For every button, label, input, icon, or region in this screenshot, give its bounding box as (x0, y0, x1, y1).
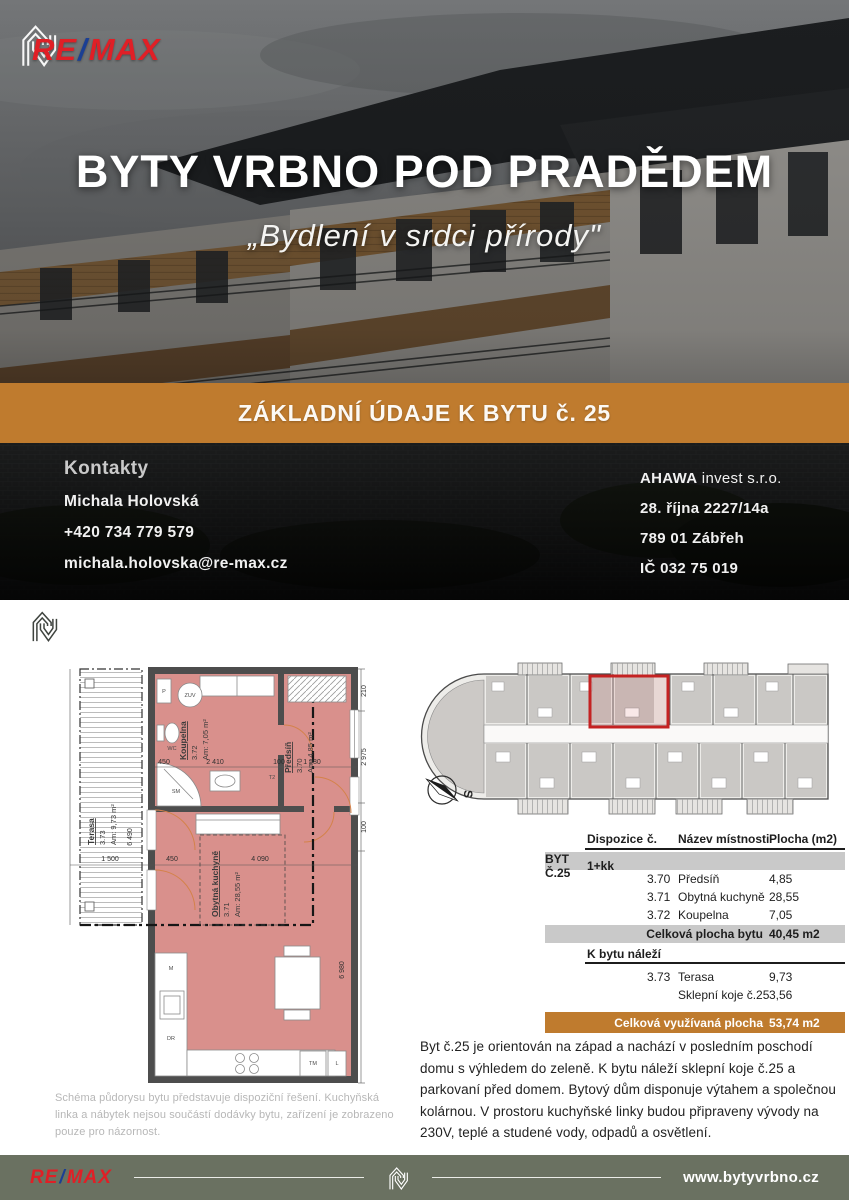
unit-layout: 1+kk (587, 859, 647, 873)
dim-label: 100 (273, 759, 285, 766)
room-number-terasa: 3.73 (98, 830, 107, 845)
room-number-koupelna: 3.72 (190, 745, 199, 760)
appliance-label: ZUV (185, 693, 196, 699)
section-header: ZÁKLADNÍ INFORMACE Byt č.25 (0, 600, 849, 658)
dim-label: 450 (158, 759, 170, 766)
room-label-terasa: Terasa (86, 818, 96, 845)
belongs-row: K bytu náleží (545, 946, 845, 962)
remax-logo: RE/MAX (14, 20, 161, 68)
page-subtitle: „Bydlení v srdci přírody" (0, 218, 849, 254)
footer-line-right (432, 1177, 662, 1179)
company-id: IČ 032 75 019 (640, 560, 782, 577)
agent-email: michala.holovska@re-max.cz (64, 555, 288, 573)
area-table: Dispozice č. Název místnosti Plocha (m2)… (545, 830, 845, 1033)
hero-section: RE/MAX BYTY VRBNO POD PRADĚDEM „Bydlení … (0, 0, 849, 600)
company-address-2: 789 01 Zábřeh (640, 530, 782, 547)
unit-row: BYT Č.25 1+kk (545, 852, 845, 870)
av-logo-icon (386, 1164, 410, 1192)
dim-label: 6 980 (339, 961, 346, 979)
table-row: 3.73 Terasa 9,73 (545, 968, 845, 986)
appliance-label: T2 (269, 775, 275, 781)
col-plocha: Plocha (m2) (769, 832, 845, 846)
dim-label: 450 (166, 856, 178, 863)
room-number-kuchyne: 3.71 (222, 902, 231, 917)
agent-name: Michala Holovská (64, 493, 288, 511)
table-header-row: Dispozice č. Název místnosti Plocha (m2) (545, 830, 845, 848)
dim-label: 210 (361, 685, 368, 697)
company-block: AHAWA invest s.r.o. 28. října 2227/14a 7… (640, 470, 782, 590)
table-row: 3.72 Koupelna 7,05 (545, 906, 845, 924)
contacts-heading: Kontakty (64, 458, 288, 480)
unit-id: BYT Č.25 (545, 852, 587, 880)
dim-label: 100 (361, 821, 368, 833)
room-label-predsin: Předsíň (283, 742, 293, 773)
appliance-label: TM (309, 1061, 317, 1067)
agent-phone: +420 734 779 579 (64, 524, 288, 542)
appliance-label: L (335, 1061, 338, 1067)
table-rule (585, 962, 845, 964)
total-area-row: Celková plocha bytu 40,45 m2 (545, 925, 845, 943)
company-address-1: 28. října 2227/14a (640, 500, 782, 517)
appliance-label: P (162, 689, 166, 695)
appliance-label: M (169, 966, 174, 972)
room-label-kuchyne: Obytná kuchyně (210, 851, 220, 917)
dim-label: 1 580 (303, 759, 321, 766)
table-row: 3.71 Obytná kuchyně 28,55 (545, 888, 845, 906)
appliance-label: WC (167, 746, 176, 752)
av-logo-icon (28, 608, 60, 644)
dim-label: 2 410 (206, 759, 224, 766)
table-rule (585, 848, 845, 850)
contact-block: Kontakty Michala Holovská +420 734 779 5… (64, 458, 288, 586)
website-link[interactable]: www.bytyvrbno.cz (683, 1169, 819, 1186)
compass-south-label: S (461, 790, 475, 798)
appliance-label: SM (172, 789, 181, 795)
footer: RE/MAX www.bytyvrbno.cz (0, 1155, 849, 1200)
flyer-page: RE/MAX BYTY VRBNO POD PRADĚDEM „Bydlení … (0, 0, 849, 1200)
col-cislo: č. (647, 832, 673, 846)
footer-line-left (134, 1177, 364, 1179)
apartment-floorplan: Terasa 3.73 Am: 9,73 m² Koupelna 3.72 Am… (60, 655, 370, 1095)
room-area-predsin: Am: 4,85 m² (306, 732, 315, 773)
room-area-terasa: Am: 9,73 m² (109, 804, 118, 845)
room-area-kuchyne: Am: 28,55 m² (233, 871, 242, 917)
appliance-label: DR (167, 1036, 175, 1042)
building-overview-plan: S (420, 660, 849, 820)
remax-wordmark: RE/MAX (30, 1167, 112, 1189)
unit-highlight (590, 676, 668, 727)
grand-total-row: Celková využívaná plocha 53,74 m2 (545, 1012, 845, 1033)
dim-label: 1 500 (101, 856, 119, 863)
unit-description: Byt č.25 je orientován na západ a nacház… (420, 1036, 849, 1144)
table-row: Sklepní koje č.25 3,56 (545, 986, 845, 1004)
col-dispozice: Dispozice (587, 832, 647, 846)
unit-banner: ZÁKLADNÍ ÚDAJE K BYTU č. 25 (0, 383, 849, 443)
dim-label: 6 490 (127, 828, 134, 846)
dim-label: 2 975 (361, 748, 368, 766)
room-label-koupelna: Koupelna (178, 721, 188, 760)
room-area-koupelna: Am: 7,05 m² (201, 719, 210, 760)
dim-label: 4 090 (251, 856, 269, 863)
floorplan-disclaimer: Schéma půdorysu bytu představuje dispozi… (55, 1090, 405, 1141)
col-nazev: Název místnosti (673, 832, 769, 846)
remax-wordmark: RE/MAX (32, 32, 161, 68)
page-title: BYTY VRBNO POD PRADĚDEM (0, 146, 849, 198)
company-name: AHAWA invest s.r.o. (640, 470, 782, 487)
